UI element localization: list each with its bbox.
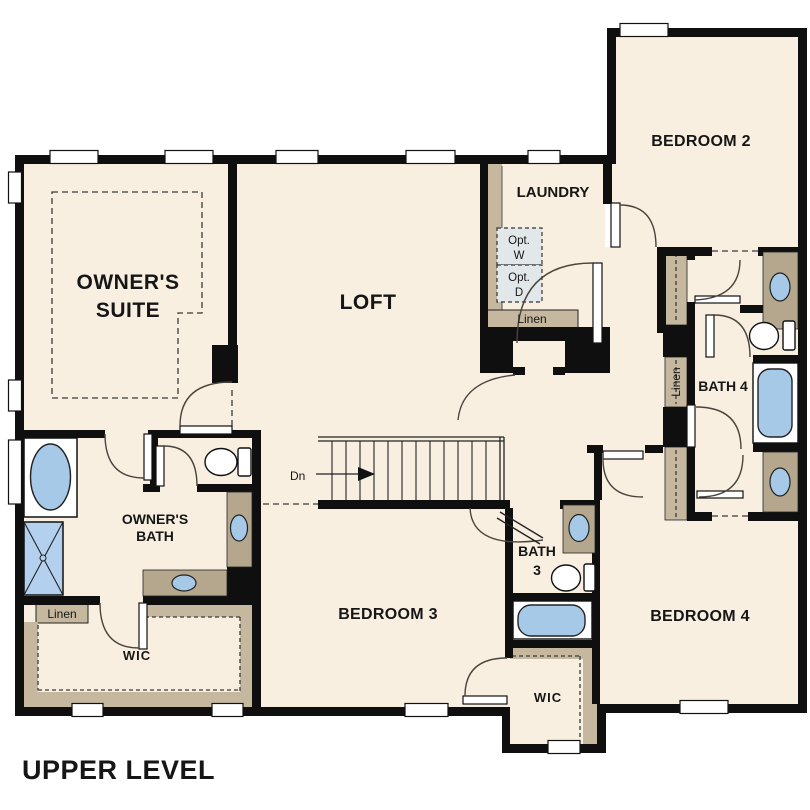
window xyxy=(9,380,22,411)
bath3-toilet-icon xyxy=(552,565,581,591)
door-leaf xyxy=(611,203,620,247)
wall xyxy=(143,596,261,605)
wall xyxy=(657,247,666,333)
label-opt-washer-2: W xyxy=(514,250,525,262)
door-leaf xyxy=(156,446,164,486)
door-leaf xyxy=(144,434,152,480)
window xyxy=(680,701,728,714)
room-label-owners-bath-1: OWNER'S xyxy=(122,511,188,527)
bath3-sink-icon xyxy=(569,515,589,542)
shower-drain-icon xyxy=(40,555,46,561)
room-label-bath3-2: 3 xyxy=(533,562,541,578)
window xyxy=(9,172,22,203)
window xyxy=(165,151,213,164)
window xyxy=(50,151,98,164)
window xyxy=(548,741,580,754)
bath3-toilet-tank xyxy=(584,564,595,591)
bath3-bathtub-icon xyxy=(518,605,585,636)
door-leaf xyxy=(139,603,147,649)
page-title: UPPER LEVEL xyxy=(22,755,215,785)
wall xyxy=(607,28,616,164)
owner-wic-shelf-bottom xyxy=(24,692,240,707)
window xyxy=(72,704,103,717)
door-leaf xyxy=(463,696,507,704)
floor-plan-page: OWNER'S SUITE LOFT LAUNDRY BEDROOM 2 BED… xyxy=(0,0,810,810)
wall xyxy=(510,593,593,601)
wall xyxy=(753,443,798,452)
bath4-toilet-tank xyxy=(783,321,795,350)
room-label-wic-bedroom: WIC xyxy=(534,690,562,705)
wall xyxy=(565,327,610,373)
wall xyxy=(24,596,100,605)
wall xyxy=(15,155,24,716)
door-leaf xyxy=(603,451,643,459)
room-label-wic-owner: WIC xyxy=(123,648,151,663)
door-leaf xyxy=(687,405,695,447)
window xyxy=(9,440,22,504)
wall xyxy=(603,164,612,204)
wall xyxy=(663,407,687,447)
wall xyxy=(228,164,237,345)
wall xyxy=(553,367,565,375)
bath4-sink-bottom-icon xyxy=(770,468,790,496)
door-leaf xyxy=(180,426,232,434)
wall xyxy=(748,512,798,521)
wall xyxy=(480,337,513,373)
label-opt-washer-1: Opt. xyxy=(508,235,530,247)
room-label-bedroom4: BEDROOM 4 xyxy=(650,608,750,625)
window xyxy=(212,704,243,717)
owners-toilet-tank xyxy=(238,448,251,476)
bath4-sink-top-icon xyxy=(770,273,790,301)
wall xyxy=(505,508,513,658)
wall xyxy=(513,367,525,375)
room-label-loft: LOFT xyxy=(340,291,397,314)
room-label-laundry: LAUNDRY xyxy=(517,184,590,201)
wall xyxy=(645,445,663,453)
room-label-bedroom2: BEDROOM 2 xyxy=(651,133,751,150)
owners-toilet-icon xyxy=(205,449,237,476)
window xyxy=(620,24,668,37)
wall xyxy=(687,512,712,521)
door-leaf xyxy=(706,315,714,357)
wall xyxy=(24,430,105,438)
room-label-bath3-1: BATH xyxy=(518,543,556,559)
wall xyxy=(227,567,261,598)
room-label-owners-suite-2: SUITE xyxy=(96,299,160,322)
bath4-bathtub-icon xyxy=(758,369,792,437)
room-label-bath4: BATH 4 xyxy=(698,378,748,394)
room-label-bedroom3: BEDROOM 3 xyxy=(338,606,438,623)
owners-bathtub-icon xyxy=(31,444,71,510)
owner-wic-shelf-topright xyxy=(143,604,240,617)
label-linen-laundry: Linen xyxy=(517,312,546,326)
wall xyxy=(212,345,238,383)
label-linen-hall: Linen xyxy=(669,367,683,396)
room-label-owners-bath-2: BATH xyxy=(136,528,174,544)
wall xyxy=(594,453,602,500)
wall xyxy=(597,712,606,753)
wall xyxy=(687,302,695,405)
floor-plan-drawing: OWNER'S SUITE LOFT LAUNDRY BEDROOM 2 BED… xyxy=(0,0,810,810)
wall xyxy=(510,640,593,648)
door-leaf xyxy=(593,263,602,343)
wall xyxy=(318,500,510,509)
owners-sink-right-icon xyxy=(231,515,248,541)
wall xyxy=(687,247,695,260)
label-opt-dryer-2: D xyxy=(515,287,523,299)
window xyxy=(528,151,560,164)
wall xyxy=(197,484,261,492)
wall xyxy=(587,445,603,453)
wall xyxy=(663,325,687,357)
wall xyxy=(480,164,488,338)
owner-wic-shelf-right xyxy=(240,604,254,707)
window xyxy=(405,704,448,717)
wall xyxy=(687,447,695,520)
owners-sink-bottom-icon xyxy=(172,575,196,591)
window xyxy=(406,151,455,164)
label-stairs-down: Dn xyxy=(290,469,305,483)
bath4-toilet-icon xyxy=(750,323,779,350)
window xyxy=(276,151,318,164)
room-label-owners-suite-1: OWNER'S xyxy=(77,271,180,294)
label-opt-dryer-1: Opt. xyxy=(508,272,530,284)
wall xyxy=(798,28,807,713)
wall xyxy=(753,355,798,363)
label-linen-owner: Linen xyxy=(47,607,76,621)
